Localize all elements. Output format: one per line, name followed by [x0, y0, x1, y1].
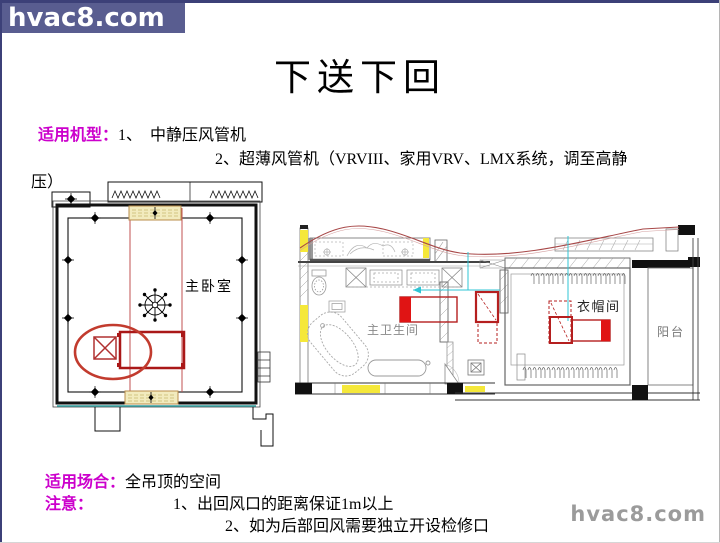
occasion-line: 适用场合：全吊顶的空间	[45, 468, 221, 492]
ceiling-revision-curve	[300, 226, 679, 257]
machine-type-label: 适用机型：	[38, 127, 118, 144]
vanity-cabinet-row	[346, 268, 462, 287]
occasion-label: 适用场合：	[45, 474, 125, 491]
closet-room-label: 衣帽间	[577, 299, 621, 314]
alcove-furniture-sketch	[315, 242, 413, 256]
highlight-ellipse	[75, 325, 151, 379]
occasion-value: 全吊顶的空间	[125, 474, 221, 491]
caution-label: 注意：	[45, 490, 93, 514]
bathroom-room-label: 主卫生间	[367, 323, 419, 337]
floor-drain-box	[468, 360, 484, 375]
drain-niche	[329, 301, 345, 312]
bathroom-bottom-wall	[295, 383, 495, 394]
door-leaf	[445, 364, 459, 384]
slide-border-left	[0, 0, 2, 543]
bathtub-fixture	[301, 306, 374, 382]
bathroom-floorplan-diagram: 主卫生间 衣帽间 阳台	[295, 196, 705, 428]
hvac8-logo-banner: hvac8.com	[2, 3, 185, 33]
machine-type-line2: 2、超薄风管机（VRVIII、家用VRV、LMX系统，调至高静	[215, 145, 628, 169]
machine-type-item1: 1、 中静压风管机	[118, 127, 246, 144]
caution-note1: 1、出回风口的距离保证1m以上	[173, 490, 393, 514]
slide-border-top	[0, 0, 720, 3]
bathroom-indoor-unit	[400, 297, 457, 322]
balcony-room-label: 阳台	[657, 324, 685, 339]
page-title: 下送下回	[0, 47, 720, 101]
machine-type-line1: 适用机型：1、 中静压风管机	[38, 121, 246, 145]
hvac8-watermark: hvac8.com	[570, 502, 706, 526]
bedroom-air-grille-bottom	[125, 391, 178, 404]
bedroom-supply-outlet	[94, 337, 116, 359]
corridor-duct-unit	[476, 292, 498, 343]
bedroom-floorplan-diagram: 主卧室	[40, 178, 295, 462]
bedroom-room-label: 主卧室	[185, 278, 233, 295]
bedroom-supply-duct	[130, 208, 182, 392]
toilet-fixture	[312, 270, 326, 295]
caution-note2: 2、如为后部回风需要独立开设检修口	[225, 512, 489, 536]
bench-fixture	[368, 360, 430, 376]
ceiling-fan-icon	[138, 288, 171, 321]
bedroom-air-grille-top	[129, 206, 181, 220]
